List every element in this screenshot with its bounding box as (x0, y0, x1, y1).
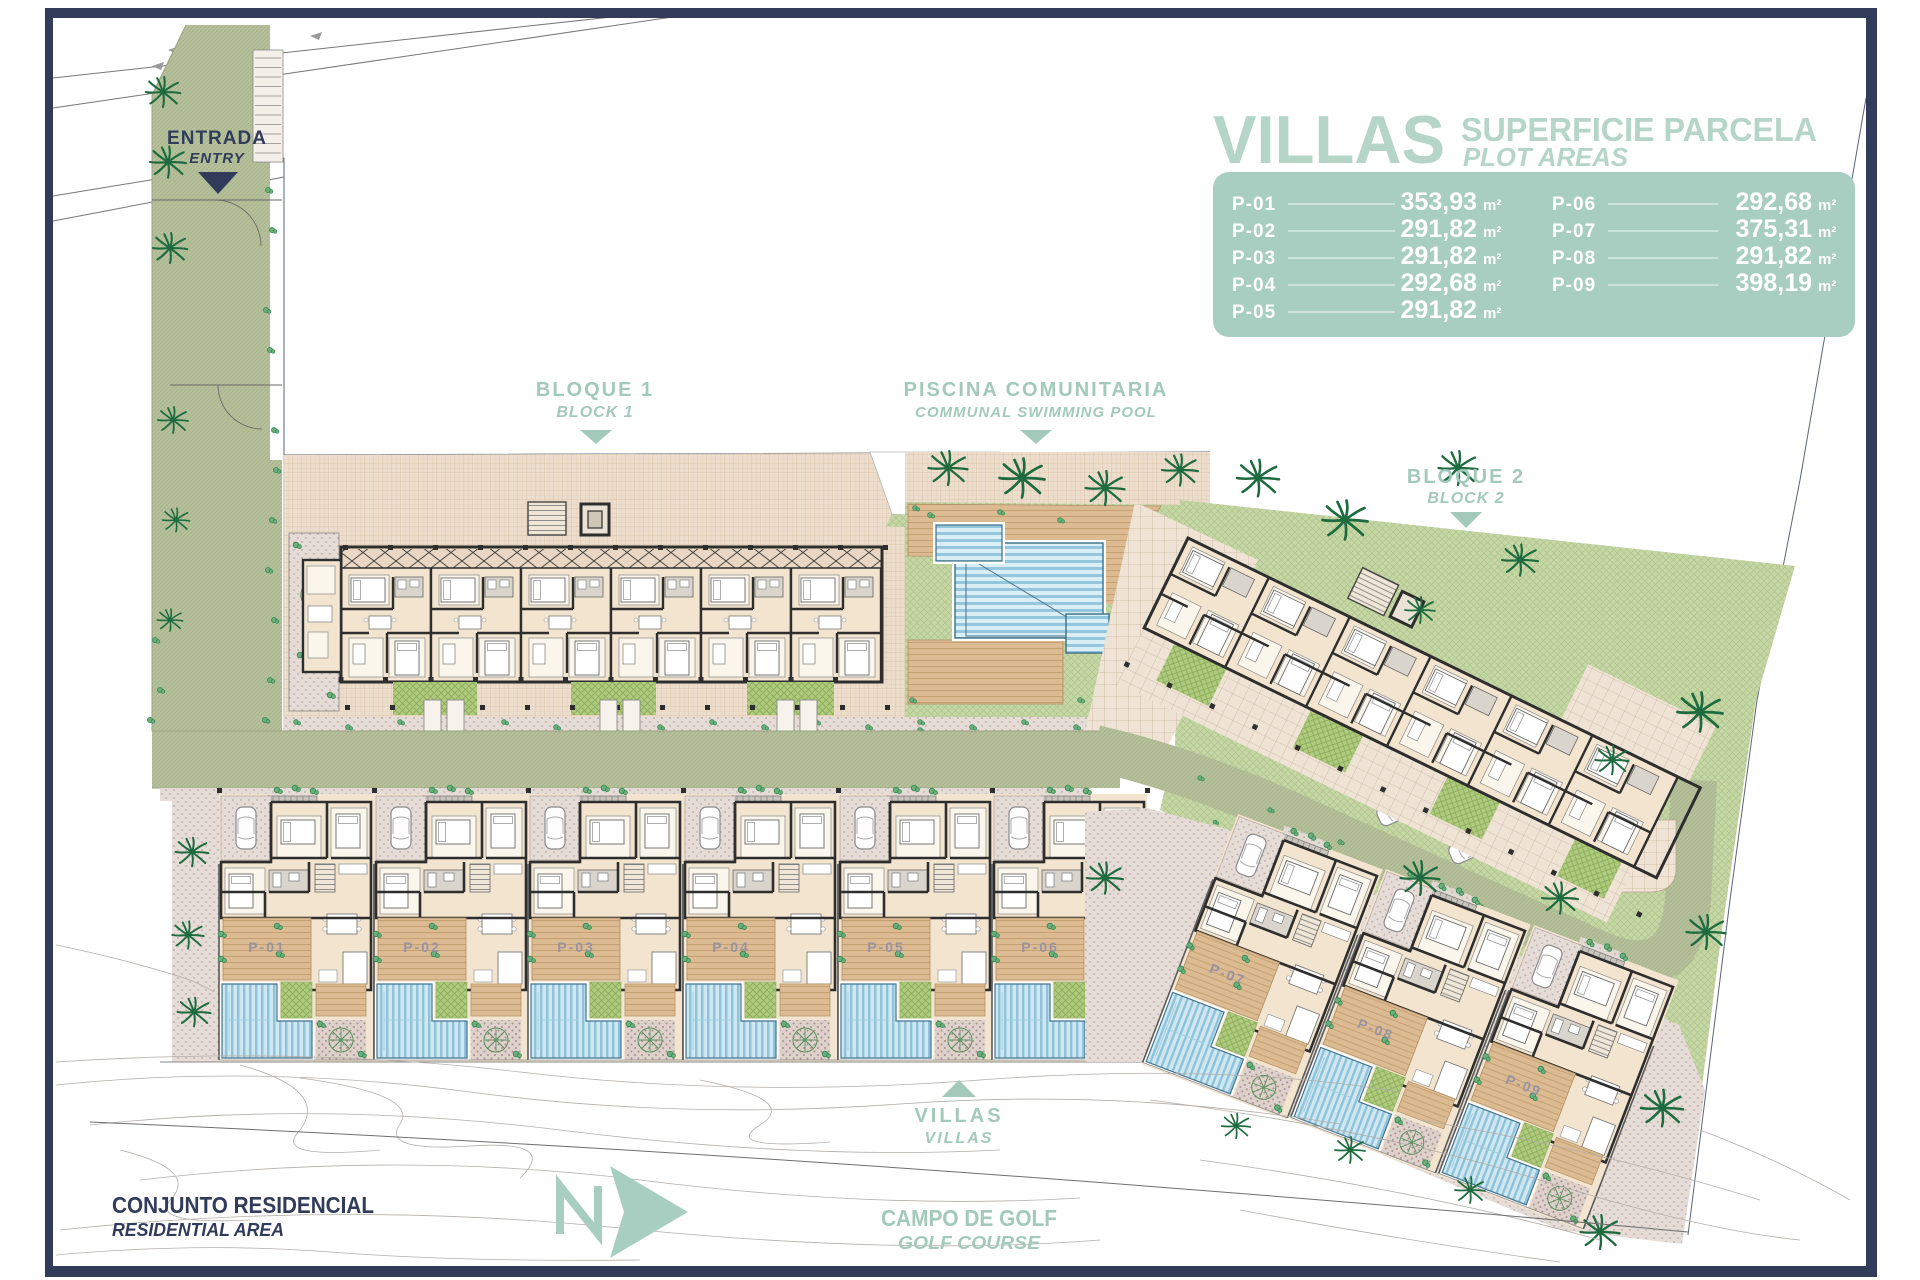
svg-text:CONJUNTO RESIDENCIAL: CONJUNTO RESIDENCIAL (112, 1192, 374, 1218)
svg-text:COMMUNAL SWIMMING POOL: COMMUNAL SWIMMING POOL (915, 404, 1157, 421)
svg-text:m²: m² (1483, 305, 1501, 322)
svg-text:292,68: 292,68 (1736, 188, 1813, 216)
svg-text:P-09: P-09 (1552, 275, 1596, 296)
svg-text:P-04: P-04 (1232, 275, 1276, 296)
svg-text:RESIDENTIAL AREA: RESIDENTIAL AREA (112, 1220, 284, 1240)
svg-text:P-05: P-05 (867, 939, 905, 955)
svg-text:m²: m² (1483, 278, 1501, 295)
svg-text:m²: m² (1483, 251, 1501, 268)
svg-text:P-05: P-05 (1232, 302, 1276, 323)
svg-text:P-01: P-01 (1232, 194, 1276, 215)
svg-text:CAMPO DE GOLF: CAMPO DE GOLF (881, 1205, 1057, 1231)
svg-text:P-06: P-06 (1552, 194, 1596, 215)
svg-text:GOLF COURSE: GOLF COURSE (898, 1233, 1041, 1253)
svg-text:PLOT AREAS: PLOT AREAS (1463, 142, 1629, 172)
svg-text:375,31: 375,31 (1736, 215, 1813, 243)
svg-text:m²: m² (1483, 197, 1501, 214)
svg-text:P-02: P-02 (403, 939, 441, 955)
svg-text:291,82: 291,82 (1736, 242, 1812, 270)
svg-text:VILLAS: VILLAS (914, 1105, 1003, 1127)
svg-text:ENTRADA: ENTRADA (167, 128, 267, 149)
svg-text:292,68: 292,68 (1401, 269, 1478, 297)
svg-text:P-08: P-08 (1552, 248, 1596, 269)
svg-text:P-04: P-04 (712, 939, 750, 955)
svg-text:BLOCK 2: BLOCK 2 (1427, 490, 1504, 507)
svg-text:P-06: P-06 (1021, 939, 1059, 955)
svg-text:291,82: 291,82 (1401, 215, 1477, 243)
svg-text:ENTRY: ENTRY (189, 150, 246, 167)
svg-text:P-01: P-01 (248, 939, 286, 955)
svg-text:VILLAS: VILLAS (1213, 102, 1445, 178)
svg-text:VILLAS: VILLAS (925, 1130, 994, 1147)
svg-text:BLOQUE 1: BLOQUE 1 (536, 379, 654, 401)
svg-text:398,19: 398,19 (1736, 269, 1812, 297)
svg-text:BLOQUE 2: BLOQUE 2 (1407, 466, 1525, 488)
svg-text:P-03: P-03 (1232, 248, 1276, 269)
svg-text:m²: m² (1818, 251, 1836, 268)
svg-text:m²: m² (1818, 278, 1836, 295)
svg-text:P-07: P-07 (1552, 221, 1596, 242)
svg-text:m²: m² (1818, 224, 1836, 241)
svg-text:m²: m² (1483, 224, 1501, 241)
svg-text:P-02: P-02 (1232, 221, 1276, 242)
svg-text:m²: m² (1818, 197, 1836, 214)
svg-text:PISCINA COMUNITARIA: PISCINA COMUNITARIA (904, 379, 1169, 401)
svg-text:291,82: 291,82 (1401, 296, 1477, 324)
svg-text:291,82: 291,82 (1401, 242, 1477, 270)
svg-text:353,93: 353,93 (1401, 188, 1477, 216)
svg-text:BLOCK 1: BLOCK 1 (556, 404, 633, 421)
svg-text:P-03: P-03 (557, 939, 595, 955)
